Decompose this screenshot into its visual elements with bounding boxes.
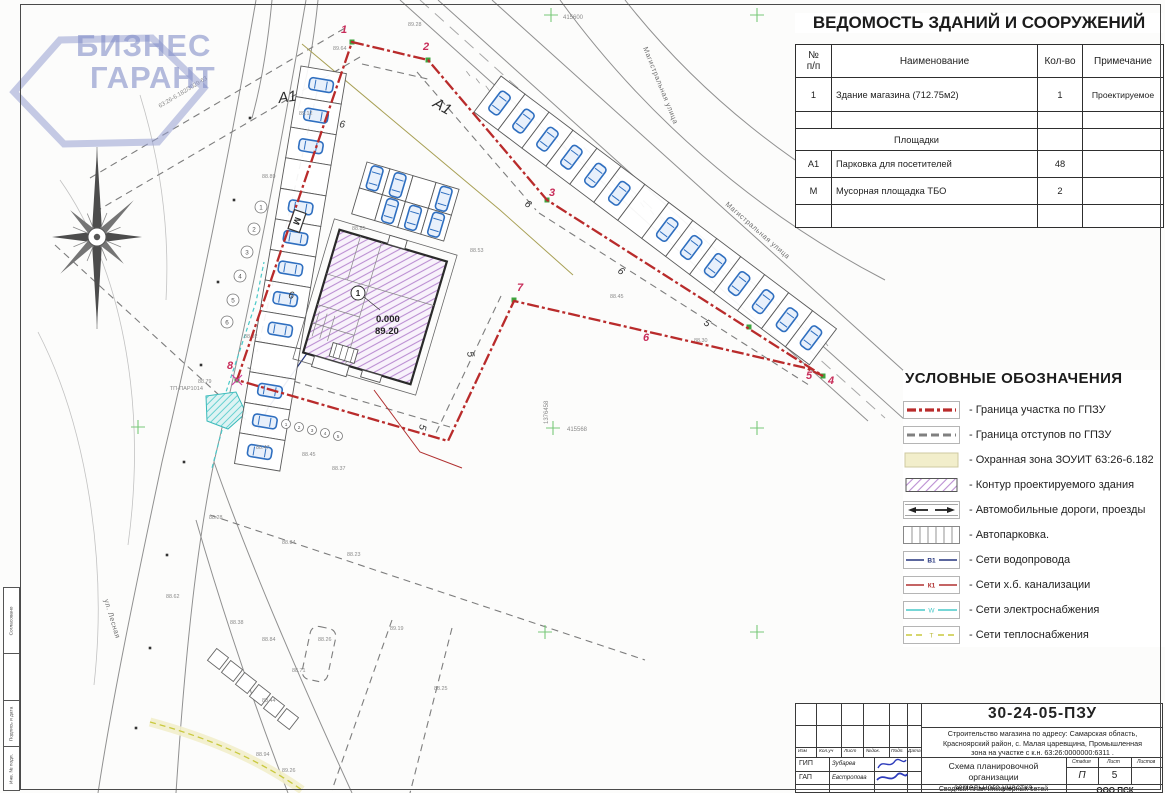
- sheet-label: Лист: [1107, 759, 1120, 765]
- setback-line-icon: [903, 426, 960, 444]
- legend-item-sewer: К1 - Сети х.б. канализации: [903, 572, 1165, 597]
- svg-text:88.26: 88.26: [318, 637, 332, 643]
- table-row: М Мусорная площадка ТБО 2: [796, 178, 1164, 205]
- coord-mid: 415568: [567, 427, 588, 433]
- col-name: Наименование: [832, 45, 1038, 78]
- svg-text:88.45: 88.45: [610, 294, 624, 300]
- svg-text:6: 6: [643, 332, 650, 344]
- electric-line-icon: W: [903, 601, 960, 619]
- roads-icon: [903, 501, 960, 519]
- heat-line-icon: Т: [903, 626, 960, 644]
- street-label-left: ул. Лесная: [102, 598, 123, 640]
- building-mark: 89.20: [375, 326, 399, 337]
- plan-text-labels: А1 А1 Магистральная улица Магистральная …: [102, 15, 792, 640]
- coord-top: 415600: [563, 15, 584, 21]
- building-contour-icon: [903, 476, 960, 494]
- drawing-sheet: ТП-ПАР1014 1234561234512345678555666689.…: [0, 0, 1165, 793]
- svg-text:8: 8: [227, 360, 234, 372]
- roads: [38, 0, 915, 793]
- project-address: Строительство магазина по адресу: Самарс…: [923, 729, 1162, 758]
- svg-text:3: 3: [311, 428, 314, 434]
- svg-text:В1: В1: [927, 557, 936, 564]
- svg-text:6: 6: [225, 320, 229, 327]
- table-row: 1 Здание магазина (712.75м2) 1 Проектиру…: [796, 78, 1164, 112]
- tp-label: ТП-ПАР1014: [170, 386, 203, 392]
- coord-vertical: 1376458: [544, 400, 550, 424]
- next-sheet-title: Сводный план инженерных сетей: [921, 786, 1066, 793]
- building-number: 1: [356, 289, 361, 298]
- svg-text:4: 4: [827, 375, 834, 387]
- svg-text:89.64: 89.64: [333, 46, 347, 52]
- role-gap: ГАП: [799, 774, 812, 781]
- svg-text:88.89: 88.89: [262, 174, 276, 180]
- svg-text:4: 4: [238, 274, 242, 281]
- svg-text:89.26: 89.26: [282, 768, 296, 774]
- col-kol: Кол.уч: [819, 749, 833, 754]
- svg-text:89.12: 89.12: [299, 111, 313, 117]
- svg-text:88.85: 88.85: [352, 226, 366, 232]
- svg-text:5: 5: [337, 434, 340, 440]
- water-line-icon: В1: [903, 551, 960, 569]
- legend-item-electric: W - Сети электроснабжения: [903, 597, 1165, 622]
- name-gap: Евстропова: [832, 775, 867, 781]
- svg-text:5: 5: [416, 423, 428, 431]
- boundary-line-icon: [903, 401, 960, 419]
- section-title: Площадки: [796, 129, 1038, 151]
- legend-item-boundary: - Граница участка по ГПЗУ: [903, 397, 1165, 422]
- svg-text:88.23: 88.23: [347, 552, 361, 558]
- legend-item-parking: - Автопарковка.: [903, 522, 1165, 547]
- doc-number: 30-24-05-ПЗУ: [921, 705, 1163, 723]
- title-block: Изм Кол.уч Лист №док. Подп. Дата ГИП Зуб…: [795, 703, 1163, 793]
- legend-item-water: В1 - Сети водопровода: [903, 547, 1165, 572]
- stage-label: Стадия: [1072, 759, 1091, 765]
- legend-item-heat: Т - Сети теплоснабжения: [903, 622, 1165, 647]
- transformer-substation: ТП-ПАР1014: [170, 386, 246, 429]
- svg-text:1: 1: [341, 24, 347, 36]
- svg-text:3: 3: [549, 187, 555, 199]
- svg-text:5: 5: [701, 318, 712, 330]
- svg-text:88.34: 88.34: [282, 540, 296, 546]
- svg-text:88.62: 88.62: [166, 594, 180, 600]
- legend: УСЛОВНЫЕ ОБОЗНАЧЕНИЯ - Граница участка п…: [903, 370, 1165, 647]
- svg-text:2: 2: [422, 41, 429, 53]
- svg-text:К1: К1: [928, 582, 936, 589]
- sheet-value: 5: [1098, 770, 1131, 781]
- svg-text:88.25: 88.25: [434, 686, 448, 692]
- svg-text:88.71: 88.71: [292, 668, 306, 674]
- svg-text:5: 5: [464, 351, 476, 359]
- legend-item-building-contour: - Контур проектируемого здания: [903, 472, 1165, 497]
- signature-icon: [875, 756, 909, 786]
- svg-text:2: 2: [252, 227, 256, 234]
- legend-title: УСЛОВНЫЕ ОБОЗНАЧЕНИЯ: [905, 370, 1165, 387]
- svg-text:1: 1: [259, 205, 263, 212]
- generated-symbols: 1234561234512345678555666689.6489.2889.1…: [131, 8, 837, 774]
- name-gip: Зубарев: [832, 761, 855, 767]
- col-qty: Кол-во: [1038, 45, 1083, 78]
- col-note: Примечание: [1083, 45, 1164, 78]
- legend-item-setback: - Граница отступов по ГПЗУ: [903, 422, 1165, 447]
- legend-item-roads: - Автомобильные дороги, проезды: [903, 497, 1165, 522]
- buildings-table-title: ВЕДОМОСТЬ ЗДАНИЙ И СООРУЖЕНИЙ: [795, 13, 1163, 33]
- company-name: ООО ПСК: [1066, 786, 1163, 793]
- role-gip: ГИП: [799, 760, 813, 767]
- svg-text:3: 3: [245, 250, 249, 257]
- svg-text:W: W: [928, 607, 935, 614]
- col-num: № п/п: [796, 45, 832, 78]
- stage-value: П: [1066, 770, 1098, 781]
- svg-text:5: 5: [231, 298, 235, 305]
- svg-text:4: 4: [324, 431, 327, 437]
- setback-lines: [55, 28, 812, 793]
- svg-text:88.37: 88.37: [332, 466, 346, 472]
- sewer-line-icon: К1: [903, 576, 960, 594]
- compass-rose-icon: [33, 147, 160, 329]
- parking-zone-a1-west: А1: [276, 88, 298, 108]
- svg-text:2: 2: [298, 425, 301, 431]
- legend-item-protection-zone: - Охранная зона ЗОУИТ 63:26-6.182: [903, 447, 1165, 472]
- col-date: Дата: [908, 749, 921, 754]
- svg-text:5: 5: [806, 370, 813, 382]
- sheets-label: Листов: [1137, 759, 1155, 765]
- svg-text:7: 7: [517, 282, 524, 294]
- svg-text:6: 6: [339, 119, 347, 131]
- col-list: Лист: [844, 749, 856, 754]
- svg-text:6: 6: [522, 199, 533, 211]
- col-doc: №док.: [866, 749, 880, 754]
- svg-text:88.28: 88.28: [209, 515, 223, 521]
- svg-text:6: 6: [615, 266, 626, 278]
- svg-text:88.38: 88.38: [230, 620, 244, 626]
- parking-zone-a1-east: А1: [429, 94, 454, 118]
- parking-icon: [903, 526, 960, 544]
- svg-text:1: 1: [285, 422, 288, 428]
- svg-text:89.28: 89.28: [408, 22, 422, 28]
- svg-text:88.45: 88.45: [302, 452, 316, 458]
- svg-text:Т: Т: [930, 632, 934, 639]
- building-level: 0.000: [376, 314, 400, 325]
- col-izm: Изм: [798, 749, 807, 754]
- table-row-empty: [796, 112, 1164, 129]
- table-row: А1 Парковка для посетителей 48: [796, 151, 1164, 178]
- side-stamp-strip: Согласовано Подпись и дата Инв. № подл.: [3, 587, 20, 791]
- table-row-empty: [796, 205, 1164, 228]
- svg-text:88.53: 88.53: [470, 248, 484, 254]
- svg-text:88.94: 88.94: [256, 752, 270, 758]
- svg-text:88.84: 88.84: [262, 637, 276, 643]
- table-section-row: Площадки: [796, 129, 1164, 151]
- svg-text:88.44: 88.44: [262, 698, 276, 704]
- svg-text:88.47: 88.47: [256, 445, 270, 451]
- col-sign: Подп.: [891, 749, 904, 754]
- protection-zone-icon: [903, 451, 960, 469]
- buildings-table: № п/п Наименование Кол-во Примечание 1 З…: [795, 44, 1164, 228]
- svg-text:89.19: 89.19: [390, 626, 404, 632]
- cad-line-label: 63:26-6.182/3029-63: [158, 76, 209, 110]
- svg-text:88.79: 88.79: [198, 379, 212, 385]
